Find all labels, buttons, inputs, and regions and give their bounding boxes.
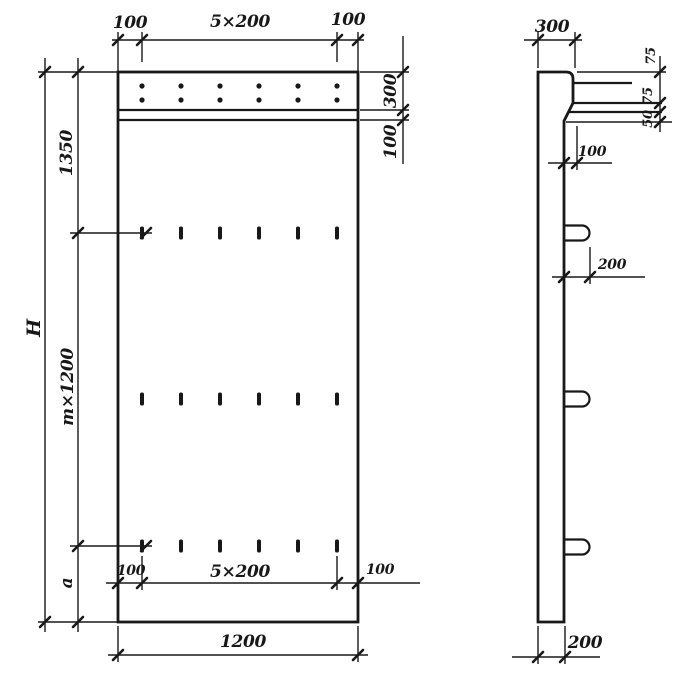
dim-side-top: 300 <box>535 17 570 37</box>
dim-top-left: 100 <box>113 13 148 33</box>
dim-thickness: 200 <box>567 633 603 653</box>
dim-loop-offset: 200 <box>597 257 627 273</box>
panel-outline <box>118 72 358 622</box>
dim-overall-height: H <box>23 318 45 338</box>
dim-left-top: 1350 <box>57 129 77 176</box>
dim-bottom-left: 100 <box>117 563 146 579</box>
dim-edge-mid: 75 <box>641 87 656 105</box>
panel-technical-drawing: 100 5×200 100 300 100 H 1350 m×1200 a 10… <box>0 0 700 700</box>
drawing-sheet: 100 5×200 100 300 100 H 1350 m×1200 a 10… <box>0 0 700 700</box>
dim-right-band: 300 <box>381 73 401 108</box>
dim-left-mid: m×1200 <box>58 348 78 426</box>
dim-left-bottom: a <box>57 578 77 589</box>
dim-bottom-overall: 1200 <box>220 632 267 652</box>
dim-right-strip: 100 <box>381 124 401 159</box>
dim-bottom-right: 100 <box>366 562 395 578</box>
reinforcement-dots <box>139 83 339 102</box>
dim-edge-top: 75 <box>644 47 659 65</box>
dim-bottom-mid: 5×200 <box>210 562 271 582</box>
dim-top-mid: 5×200 <box>210 12 271 32</box>
dim-edge-bottom: 50 <box>641 110 656 128</box>
dim-top-right: 100 <box>331 10 366 30</box>
tie-dashes <box>140 227 339 553</box>
dim-ledge: 100 <box>578 144 607 160</box>
